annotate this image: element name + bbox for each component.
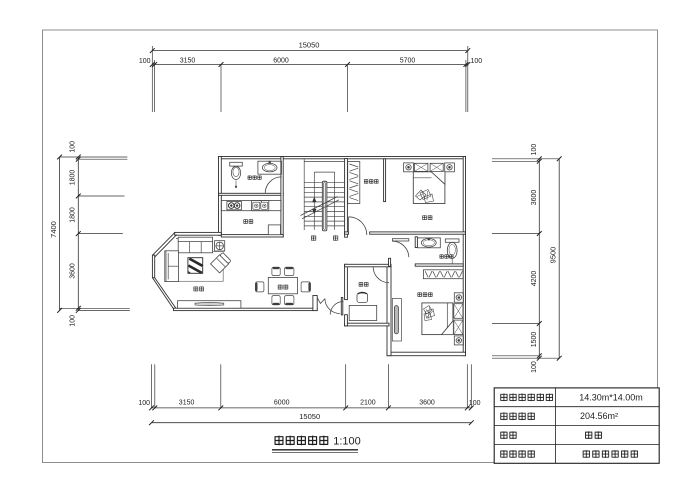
svg-text:6000: 6000: [274, 399, 290, 406]
svg-text:3600: 3600: [70, 263, 77, 279]
svg-text:204.56m²: 204.56m²: [580, 411, 618, 421]
svg-text:15050: 15050: [299, 41, 320, 50]
svg-text:1500: 1500: [531, 332, 538, 348]
svg-text:100: 100: [531, 361, 538, 373]
svg-text:100: 100: [469, 400, 481, 407]
svg-text:1800: 1800: [70, 170, 77, 186]
svg-text:100: 100: [471, 58, 483, 65]
svg-text:3600: 3600: [531, 190, 538, 206]
svg-text:100: 100: [70, 315, 77, 327]
svg-text:7400: 7400: [49, 221, 58, 238]
svg-text:2100: 2100: [360, 399, 376, 406]
svg-text:6000: 6000: [273, 57, 289, 64]
svg-text:100: 100: [139, 58, 151, 65]
svg-text:100: 100: [138, 400, 150, 407]
svg-text:1800: 1800: [70, 207, 77, 223]
svg-text:9500: 9500: [548, 247, 557, 264]
svg-text:3150: 3150: [180, 57, 196, 64]
svg-text:15050: 15050: [299, 412, 320, 421]
svg-text:1:100: 1:100: [333, 436, 361, 448]
svg-text:5700: 5700: [400, 57, 416, 64]
svg-text:100: 100: [70, 141, 77, 153]
svg-text:14.30m*14.00m: 14.30m*14.00m: [579, 392, 643, 402]
svg-text:4200: 4200: [531, 271, 538, 287]
svg-text:3150: 3150: [179, 399, 195, 406]
svg-text:100: 100: [531, 144, 538, 156]
svg-text:3600: 3600: [419, 399, 435, 406]
